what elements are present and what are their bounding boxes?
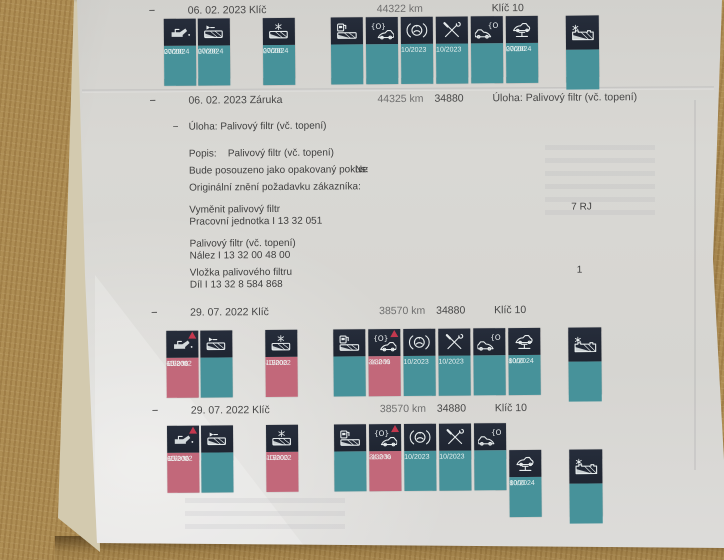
badge-value-area bbox=[333, 356, 365, 396]
badge-icon-area bbox=[568, 327, 601, 361]
badge-icon-area bbox=[509, 450, 541, 477]
badge-value-line: 10/2023 bbox=[403, 358, 428, 368]
badge-icon-area: {O} bbox=[369, 424, 401, 451]
record-label: Klíč 10 bbox=[492, 2, 524, 14]
brake-pads-car-right-icon: {O} bbox=[478, 427, 502, 446]
record-mileage: 44322 km bbox=[377, 3, 423, 15]
badge-value-line: 10/2024 bbox=[508, 357, 533, 367]
record-mileage: 44325 km bbox=[377, 93, 423, 105]
record-mileage: 38570 km bbox=[379, 305, 425, 317]
svg-text:{O}: {O} bbox=[488, 21, 499, 30]
service-interval-badge: {O} bbox=[471, 16, 504, 83]
badge-value-area bbox=[566, 49, 599, 89]
badge-value-area: -1300034.2 % bbox=[369, 451, 401, 491]
service-interval-badge: 800010/2024 bbox=[509, 450, 542, 517]
collapse-dash: − bbox=[149, 95, 156, 107]
record-label: Úloha: Palivový filtr (vč. topení) bbox=[492, 91, 637, 104]
badge-value-area: -1500065.2 %10/2022 bbox=[166, 358, 198, 398]
badge-value-area: 10/2023 bbox=[439, 450, 471, 490]
badge-value-line: 07/2024 bbox=[263, 47, 288, 57]
service-interval-badge: 10/2023 bbox=[404, 424, 437, 491]
badge-value-area bbox=[568, 361, 601, 401]
work-item-ref: Díl I 13 32 8 584 868 bbox=[190, 279, 283, 291]
field-value-repeat-attempt: Ne bbox=[355, 164, 368, 175]
svg-text:{O}: {O} bbox=[490, 333, 501, 342]
badge-value-area: 10/2023 bbox=[404, 451, 436, 491]
fuel-filter-icon bbox=[335, 22, 359, 39]
badge-value-line: 34.2 % bbox=[368, 358, 390, 368]
records-container: −06. 02. 2023 Klíč44322 kmKlíč 102000007… bbox=[0, 0, 722, 3]
badge-value-area: 2000007/2024 bbox=[198, 45, 230, 85]
badge-icon-area bbox=[439, 423, 471, 450]
badge-icon-area: {O} bbox=[366, 17, 398, 44]
service-record: −29. 07. 2022 Klíč38570 km34880Klíč 10-1… bbox=[0, 0, 722, 3]
record-code: 34880 bbox=[436, 304, 465, 316]
badge-icon-area bbox=[198, 18, 230, 45]
field-value-popis: Palivový filtr (vč. topení) bbox=[228, 148, 334, 160]
badge-value-area: 10/2023 bbox=[403, 356, 435, 396]
service-interval-badge: -1500065.2 %10/2022 bbox=[166, 331, 199, 398]
svg-text:{O}: {O} bbox=[374, 429, 389, 438]
field-label-original-request: Originální znění požadavku zákazníka: bbox=[189, 181, 361, 193]
service-interval-badge: 2000007/2024 bbox=[263, 18, 296, 85]
badge-value-area: 10/2023 bbox=[436, 43, 468, 83]
warning-triangle-icon bbox=[189, 427, 197, 434]
badge-icon-area bbox=[566, 15, 599, 49]
badge-icon-area bbox=[333, 329, 365, 356]
service-interval-badge: {O} bbox=[473, 328, 506, 395]
badge-value-line: 07/2024 bbox=[506, 45, 531, 55]
fuel-filter-icon bbox=[338, 429, 362, 446]
svg-text:{O}: {O} bbox=[491, 428, 502, 437]
work-item-title: Palivový filtr (vč. topení) bbox=[190, 238, 296, 250]
service-interval-badge bbox=[569, 449, 603, 516]
badge-value-line: 10/2024 bbox=[509, 479, 534, 489]
service-interval-badge bbox=[201, 425, 234, 492]
badge-value-area bbox=[331, 44, 363, 84]
service-interval-badge bbox=[334, 424, 367, 491]
brake-pads-car-right-icon: {O} bbox=[477, 332, 501, 351]
record-code: 34880 bbox=[437, 402, 466, 414]
badge-value-area: 2000007/2024 bbox=[263, 45, 295, 85]
service-tools-icon bbox=[440, 21, 464, 38]
badge-value-area bbox=[200, 357, 232, 397]
service-interval-badge: -1500010/2022 bbox=[266, 425, 299, 492]
oil-can-icon bbox=[168, 24, 192, 41]
badge-value-line: 07/2024 bbox=[198, 47, 223, 57]
badge-value-line: 10/2022 bbox=[167, 455, 192, 465]
service-interval-badge bbox=[568, 327, 602, 394]
warning-triangle-icon bbox=[390, 330, 398, 337]
work-item-ref: Nález I 13 32 00 48 00 bbox=[190, 250, 291, 262]
service-record: −29. 07. 2022 Klíč38570 km34880Klíč 10-1… bbox=[0, 0, 722, 3]
badge-value-area: 800010/2024 bbox=[508, 355, 540, 395]
exhaust-filter-icon bbox=[205, 430, 229, 447]
car-lift-icon bbox=[510, 20, 534, 39]
pollen-filter-icon bbox=[269, 335, 293, 352]
warning-triangle-icon bbox=[188, 332, 196, 339]
brake-disc-icon bbox=[407, 334, 431, 351]
badge-icon-area: {O} bbox=[473, 328, 505, 355]
service-record: −06. 02. 2023 Záruka44325 km34880Úloha: … bbox=[0, 0, 722, 3]
service-interval-badge: -1500010/2022 bbox=[265, 330, 298, 397]
service-interval-badge: 10/2023 bbox=[439, 423, 472, 490]
report-content: −06. 02. 2023 Klíč44322 kmKlíč 102000007… bbox=[0, 0, 724, 560]
badge-value-area bbox=[473, 355, 505, 395]
badge-value-area: -1500010/2022 bbox=[265, 357, 297, 397]
svg-text:{O}: {O} bbox=[371, 22, 386, 31]
badge-value-line: 07/2024 bbox=[164, 48, 189, 58]
collapse-dash: − bbox=[151, 307, 158, 319]
badge-value-area: 800010/2024 bbox=[509, 477, 541, 517]
pollen-filter-icon bbox=[270, 430, 294, 447]
badge-icon-area bbox=[265, 330, 297, 357]
brake-disc-icon bbox=[408, 429, 432, 446]
service-interval-badge bbox=[200, 330, 233, 397]
service-interval-badge bbox=[333, 329, 366, 396]
record-mileage: 38570 km bbox=[380, 403, 426, 415]
badge-icon-area bbox=[569, 449, 602, 483]
badge-icon-area bbox=[436, 16, 468, 43]
badge-value-line: 10/2023 bbox=[438, 358, 463, 368]
exhaust-filter-icon bbox=[204, 335, 228, 352]
service-interval-badge: 800010/2024 bbox=[508, 328, 541, 395]
service-interval-badge: -1500065.2 %10/2022 bbox=[167, 426, 200, 493]
work-item-ref: Pracovní jednotka I 13 32 051 bbox=[189, 216, 322, 228]
service-record: −06. 02. 2023 Klíč44322 kmKlíč 102000007… bbox=[0, 0, 722, 3]
collapse-dash: − bbox=[149, 5, 156, 17]
badge-icon-area: {O} bbox=[368, 329, 400, 356]
collapse-dash: − bbox=[152, 405, 159, 417]
battery-cold-icon bbox=[572, 458, 600, 475]
record-date: 29. 07. 2022 Klíč bbox=[191, 404, 270, 417]
badge-value-area: -1500065.2 %10/2022 bbox=[167, 453, 199, 493]
field-label-popis: Popis: bbox=[189, 148, 217, 159]
badge-value-area bbox=[569, 483, 602, 523]
collapse-dash: − bbox=[173, 122, 179, 133]
photo-of-service-report: −06. 02. 2023 Klíč44322 kmKlíč 102000007… bbox=[0, 0, 724, 560]
badge-icon-area bbox=[200, 330, 232, 357]
badge-value-area: -1300034.2 % bbox=[368, 356, 400, 396]
battery-cold-icon bbox=[571, 336, 599, 353]
badge-value-line: 10/2023 bbox=[439, 452, 464, 462]
badge-value-area bbox=[366, 44, 398, 84]
badge-value-area: -1500010/2022 bbox=[266, 452, 298, 492]
field-label-repeat-attempt: Bude posouzeno jako opakovaný pokus: bbox=[189, 164, 369, 176]
record-code: 34880 bbox=[434, 92, 463, 104]
brake-disc-icon bbox=[405, 22, 429, 39]
work-item-qty: 7 RJ bbox=[571, 201, 592, 212]
warning-triangle-icon bbox=[391, 425, 399, 432]
service-interval-badge: 2000007/2024 bbox=[506, 16, 539, 83]
badge-value-area: 2000007/2024 bbox=[164, 46, 196, 86]
service-interval-badge: 2000007/2024 bbox=[164, 19, 197, 86]
badge-icon-area bbox=[164, 19, 196, 46]
battery-cold-icon bbox=[568, 24, 596, 41]
badge-value-area bbox=[334, 451, 366, 491]
service-tools-icon bbox=[443, 428, 467, 445]
badge-icon-area bbox=[506, 16, 538, 43]
badge-icon-area bbox=[438, 328, 470, 355]
service-interval-badge: 10/2023 bbox=[401, 17, 434, 84]
badge-icon-area bbox=[331, 17, 363, 44]
badge-value-line: 10/2022 bbox=[166, 360, 191, 370]
service-interval-badge bbox=[331, 17, 364, 84]
service-report-sheet: −06. 02. 2023 Klíč44322 kmKlíč 102000007… bbox=[0, 0, 724, 560]
service-interval-badge: {O} bbox=[474, 423, 507, 490]
badge-value-line: 10/2022 bbox=[266, 454, 291, 464]
record-date: 29. 07. 2022 Klíč bbox=[190, 306, 269, 319]
exhaust-filter-icon bbox=[202, 23, 226, 40]
badge-value-line: 10/2023 bbox=[436, 46, 461, 56]
service-interval-badge bbox=[566, 15, 600, 82]
badge-value-line: 34.2 % bbox=[369, 453, 391, 463]
badge-icon-area bbox=[403, 329, 435, 356]
badge-icon-area bbox=[401, 17, 433, 44]
service-interval-badge: {O}-1300034.2 % bbox=[368, 329, 401, 396]
badge-icon-area bbox=[263, 18, 295, 45]
brake-pads-car-icon: {O} bbox=[370, 21, 394, 40]
service-interval-badge: 2000007/2024 bbox=[198, 18, 231, 85]
badge-value-area bbox=[474, 450, 506, 490]
record-date: 06. 02. 2023 Záruka bbox=[188, 94, 282, 107]
record-label: Klíč 10 bbox=[494, 304, 526, 316]
badge-icon-area bbox=[334, 424, 366, 451]
record-date: 06. 02. 2023 Klíč bbox=[188, 4, 267, 17]
pollen-filter-icon bbox=[267, 23, 291, 40]
service-interval-badge: 10/2023 bbox=[438, 328, 471, 395]
fuel-filter-icon bbox=[337, 334, 361, 351]
badge-icon-area bbox=[508, 328, 540, 355]
badge-icon-area: {O} bbox=[471, 16, 503, 43]
car-lift-icon bbox=[512, 332, 536, 351]
badge-icon-area bbox=[201, 425, 233, 452]
badge-value-line: 10/2023 bbox=[404, 453, 429, 463]
work-item-qty: 1 bbox=[577, 265, 583, 276]
badge-value-area bbox=[201, 452, 233, 492]
service-tools-icon bbox=[442, 333, 466, 350]
service-interval-badge: {O} bbox=[366, 17, 399, 84]
badge-value-area: 10/2023 bbox=[401, 44, 433, 84]
badge-value-area bbox=[471, 43, 503, 83]
badge-icon-area: {O} bbox=[474, 423, 506, 450]
svg-text:{O}: {O} bbox=[373, 334, 388, 343]
service-interval-badge: 10/2023 bbox=[403, 329, 436, 396]
detail-title: Úloha: Palivový filtr (vč. topení) bbox=[189, 121, 327, 133]
badge-icon-area bbox=[404, 424, 436, 451]
work-item-title: Vyměnit palivový filtr bbox=[189, 204, 280, 216]
work-item-title: Vložka palivového filtru bbox=[190, 267, 292, 279]
badge-icon-area bbox=[266, 425, 298, 452]
service-interval-badge: {O}-1300034.2 % bbox=[369, 424, 402, 491]
record-label: Klíč 10 bbox=[495, 402, 527, 414]
badge-value-line: 10/2022 bbox=[265, 359, 290, 369]
service-interval-badge: 10/2023 bbox=[436, 16, 469, 83]
car-lift-icon bbox=[513, 454, 537, 473]
task-detail-section: − Úloha: Palivový filtr (vč. topení) Pop… bbox=[0, 0, 722, 3]
badge-icon-area bbox=[167, 426, 199, 453]
badge-value-area: 2000007/2024 bbox=[506, 43, 538, 83]
badge-value-area: 10/2023 bbox=[438, 355, 470, 395]
badge-icon-area bbox=[166, 331, 198, 358]
brake-pads-car-right-icon: {O} bbox=[475, 20, 499, 39]
badge-value-line: 10/2023 bbox=[401, 46, 426, 56]
